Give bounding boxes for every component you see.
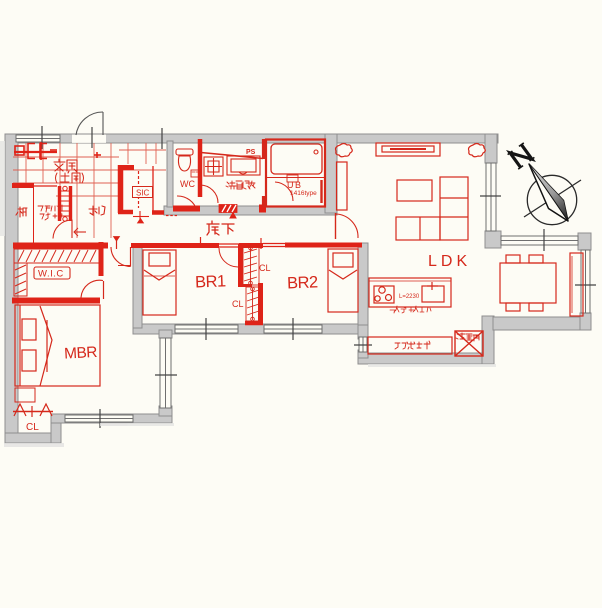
svg-text:1416type: 1416type <box>290 190 317 197</box>
svg-text:LDK: LDK <box>428 253 471 270</box>
svg-text:SIC: SIC <box>136 189 150 198</box>
svg-text:W.I.C: W.I.C <box>38 269 64 280</box>
svg-text:WC: WC <box>180 179 195 189</box>
svg-text:BR1: BR1 <box>195 272 227 291</box>
svg-text:CL: CL <box>26 422 39 433</box>
svg-text:PS: PS <box>246 149 256 156</box>
svg-text:CL: CL <box>259 263 271 273</box>
svg-text:MBR: MBR <box>64 344 98 363</box>
svg-text:BR2: BR2 <box>287 273 319 292</box>
svg-text:CL: CL <box>232 299 244 309</box>
svg-text:L=2230: L=2230 <box>399 294 420 300</box>
svg-text:UB: UB <box>287 180 303 190</box>
